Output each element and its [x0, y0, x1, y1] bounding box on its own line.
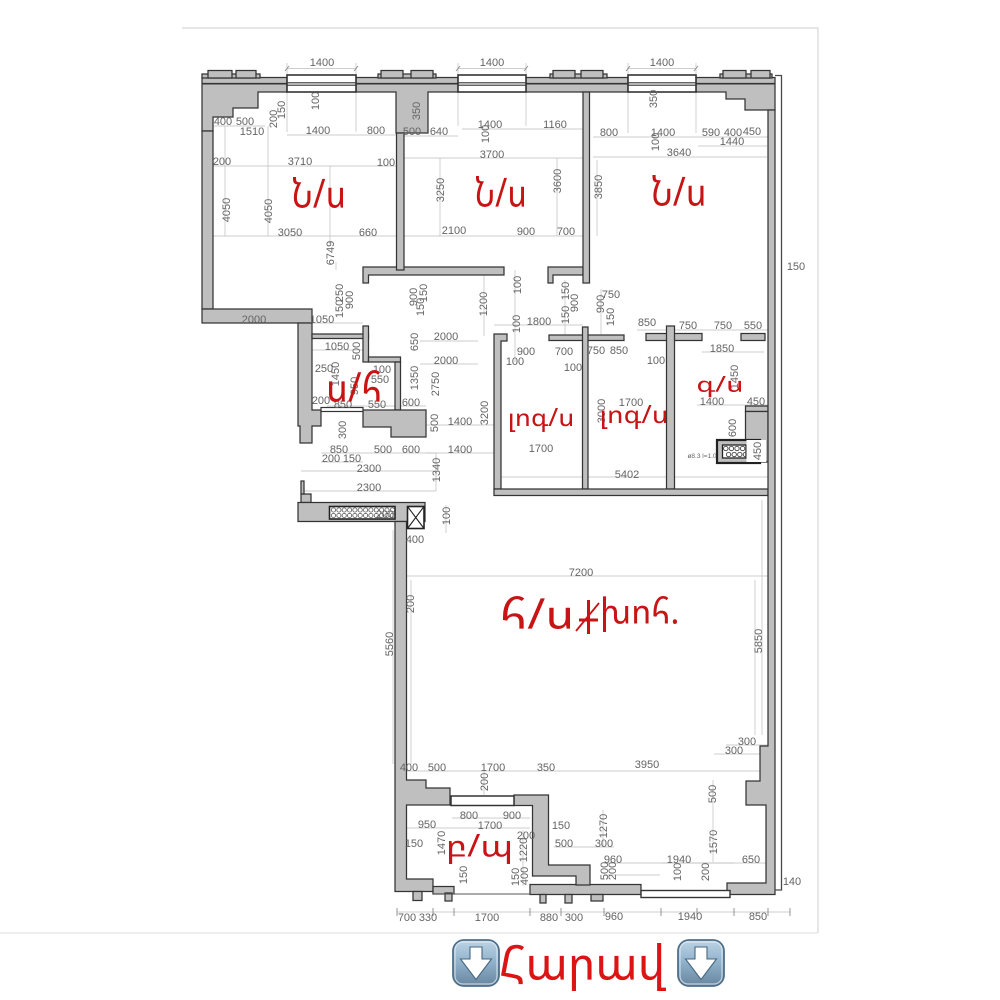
svg-text:1160: 1160	[543, 119, 567, 131]
svg-text:150: 150	[415, 298, 427, 316]
svg-text:1470: 1470	[436, 831, 448, 855]
svg-text:100: 100	[480, 125, 492, 143]
svg-text:100: 100	[511, 315, 523, 333]
svg-text:3600: 3600	[552, 169, 564, 193]
svg-text:500: 500	[707, 785, 719, 803]
svg-text:200: 200	[213, 156, 231, 168]
svg-text:700: 700	[398, 912, 416, 924]
svg-text:1400: 1400	[700, 396, 724, 408]
svg-text:800: 800	[460, 810, 478, 822]
svg-text:800: 800	[600, 127, 618, 139]
svg-text:200: 200	[479, 773, 491, 791]
svg-text:1270: 1270	[598, 814, 610, 838]
svg-text:850: 850	[638, 317, 656, 329]
svg-text:350: 350	[537, 762, 555, 774]
svg-text:6749: 6749	[325, 241, 337, 265]
svg-text:1850: 1850	[710, 343, 734, 355]
svg-text:1050: 1050	[325, 341, 349, 353]
svg-text:100: 100	[310, 92, 322, 110]
svg-text:750: 750	[587, 345, 605, 357]
svg-text:100: 100	[512, 276, 524, 294]
svg-text:2300: 2300	[357, 482, 381, 494]
svg-text:1340: 1340	[431, 458, 443, 482]
svg-text:100: 100	[672, 863, 684, 881]
svg-text:150: 150	[552, 820, 570, 832]
svg-text:600: 600	[402, 444, 420, 456]
svg-text:2750: 2750	[430, 372, 442, 396]
svg-text:300: 300	[725, 745, 743, 757]
svg-text:500: 500	[374, 444, 392, 456]
svg-text:500: 500	[429, 414, 441, 432]
svg-text:300: 300	[595, 838, 613, 850]
svg-text:500: 500	[555, 838, 573, 850]
svg-text:150: 150	[787, 261, 805, 273]
svg-text:300: 300	[337, 421, 349, 439]
svg-text:950: 950	[418, 819, 436, 831]
svg-text:1700: 1700	[529, 443, 553, 455]
svg-text:350: 350	[648, 90, 660, 108]
svg-text:200: 200	[700, 863, 712, 881]
svg-text:850: 850	[610, 345, 628, 357]
svg-text:800: 800	[367, 125, 385, 137]
svg-text:5560: 5560	[384, 632, 396, 656]
svg-text:3950: 3950	[635, 759, 659, 771]
svg-text:600: 600	[727, 419, 739, 437]
svg-text:900: 900	[517, 226, 535, 238]
svg-text:100: 100	[441, 507, 453, 525]
svg-text:2300: 2300	[357, 463, 381, 475]
svg-text:7200: 7200	[569, 567, 593, 579]
svg-text:1350: 1350	[409, 366, 421, 390]
svg-text:100: 100	[650, 133, 662, 151]
svg-text:500: 500	[403, 126, 421, 138]
svg-text:450: 450	[743, 126, 761, 138]
svg-text:3710: 3710	[288, 156, 312, 168]
svg-text:100: 100	[647, 355, 665, 367]
svg-text:660: 660	[359, 227, 377, 239]
svg-text:100: 100	[377, 157, 395, 169]
svg-text:590: 590	[702, 127, 720, 139]
svg-text:330: 330	[419, 912, 437, 924]
svg-text:100: 100	[506, 356, 524, 368]
svg-text:3200: 3200	[479, 401, 491, 425]
svg-text:4050: 4050	[263, 199, 275, 223]
svg-text:140: 140	[783, 876, 801, 888]
svg-text:750: 750	[714, 320, 732, 332]
svg-text:1440: 1440	[720, 136, 744, 148]
svg-text:100: 100	[564, 362, 582, 374]
svg-text:1400: 1400	[310, 57, 334, 69]
svg-text:5402: 5402	[615, 469, 639, 481]
svg-text:150: 150	[458, 866, 470, 884]
svg-text:550: 550	[744, 320, 762, 332]
svg-text:600: 600	[402, 397, 420, 409]
svg-text:1220: 1220	[518, 838, 530, 862]
svg-text:400: 400	[406, 534, 424, 546]
svg-text:1400: 1400	[480, 57, 504, 69]
svg-text:500: 500	[351, 342, 363, 360]
svg-text:3250: 3250	[435, 178, 447, 202]
svg-text:1400: 1400	[306, 125, 330, 137]
svg-text:1200: 1200	[478, 292, 490, 316]
svg-text:1400: 1400	[448, 444, 472, 456]
svg-text:200: 200	[376, 509, 394, 521]
svg-text:400: 400	[519, 867, 531, 885]
svg-text:1700: 1700	[619, 397, 643, 409]
svg-text:1700: 1700	[481, 762, 505, 774]
svg-text:150: 150	[276, 101, 288, 119]
svg-text:1700: 1700	[478, 820, 502, 832]
svg-text:3700: 3700	[480, 149, 504, 161]
svg-text:150: 150	[605, 308, 617, 326]
svg-text:1570: 1570	[708, 830, 720, 854]
svg-text:350: 350	[411, 102, 423, 120]
svg-text:150: 150	[405, 838, 423, 850]
svg-text:5850: 5850	[753, 629, 765, 653]
svg-text:850: 850	[749, 911, 767, 923]
svg-text:3640: 3640	[667, 147, 691, 159]
svg-text:1510: 1510	[240, 126, 264, 138]
svg-text:900: 900	[503, 810, 521, 822]
svg-text:3850: 3850	[593, 175, 605, 199]
svg-text:550: 550	[371, 374, 389, 386]
svg-text:880: 880	[540, 912, 558, 924]
svg-text:640: 640	[430, 126, 448, 138]
svg-text:900: 900	[344, 291, 356, 309]
svg-text:4050: 4050	[221, 198, 233, 222]
svg-text:200: 200	[405, 595, 417, 613]
svg-text:960: 960	[605, 911, 623, 923]
svg-text:700: 700	[557, 226, 575, 238]
svg-text:3050: 3050	[278, 227, 302, 239]
svg-text:200: 200	[322, 453, 340, 465]
svg-text:900: 900	[569, 294, 581, 312]
svg-text:2000: 2000	[242, 314, 266, 326]
svg-text:450: 450	[747, 396, 765, 408]
svg-text:300: 300	[565, 912, 583, 924]
svg-text:1400: 1400	[650, 57, 674, 69]
svg-text:400: 400	[400, 762, 418, 774]
svg-text:200: 200	[312, 395, 330, 407]
svg-text:650: 650	[409, 333, 421, 351]
svg-text:1700: 1700	[475, 912, 499, 924]
svg-text:400: 400	[214, 116, 232, 128]
svg-text:1940: 1940	[678, 911, 702, 923]
svg-text:ø8.3 l=1.0: ø8.3 l=1.0	[687, 453, 716, 460]
svg-text:500: 500	[428, 762, 446, 774]
svg-text:1400: 1400	[448, 416, 472, 428]
svg-text:650: 650	[742, 854, 760, 866]
svg-text:200: 200	[607, 862, 619, 880]
svg-text:750: 750	[679, 320, 697, 332]
svg-text:2000: 2000	[434, 331, 458, 343]
svg-text:700: 700	[555, 346, 573, 358]
svg-text:450: 450	[752, 442, 764, 460]
svg-text:1800: 1800	[527, 316, 551, 328]
svg-text:2100: 2100	[442, 225, 466, 237]
svg-text:1050: 1050	[310, 314, 334, 326]
svg-text:2000: 2000	[434, 355, 458, 367]
